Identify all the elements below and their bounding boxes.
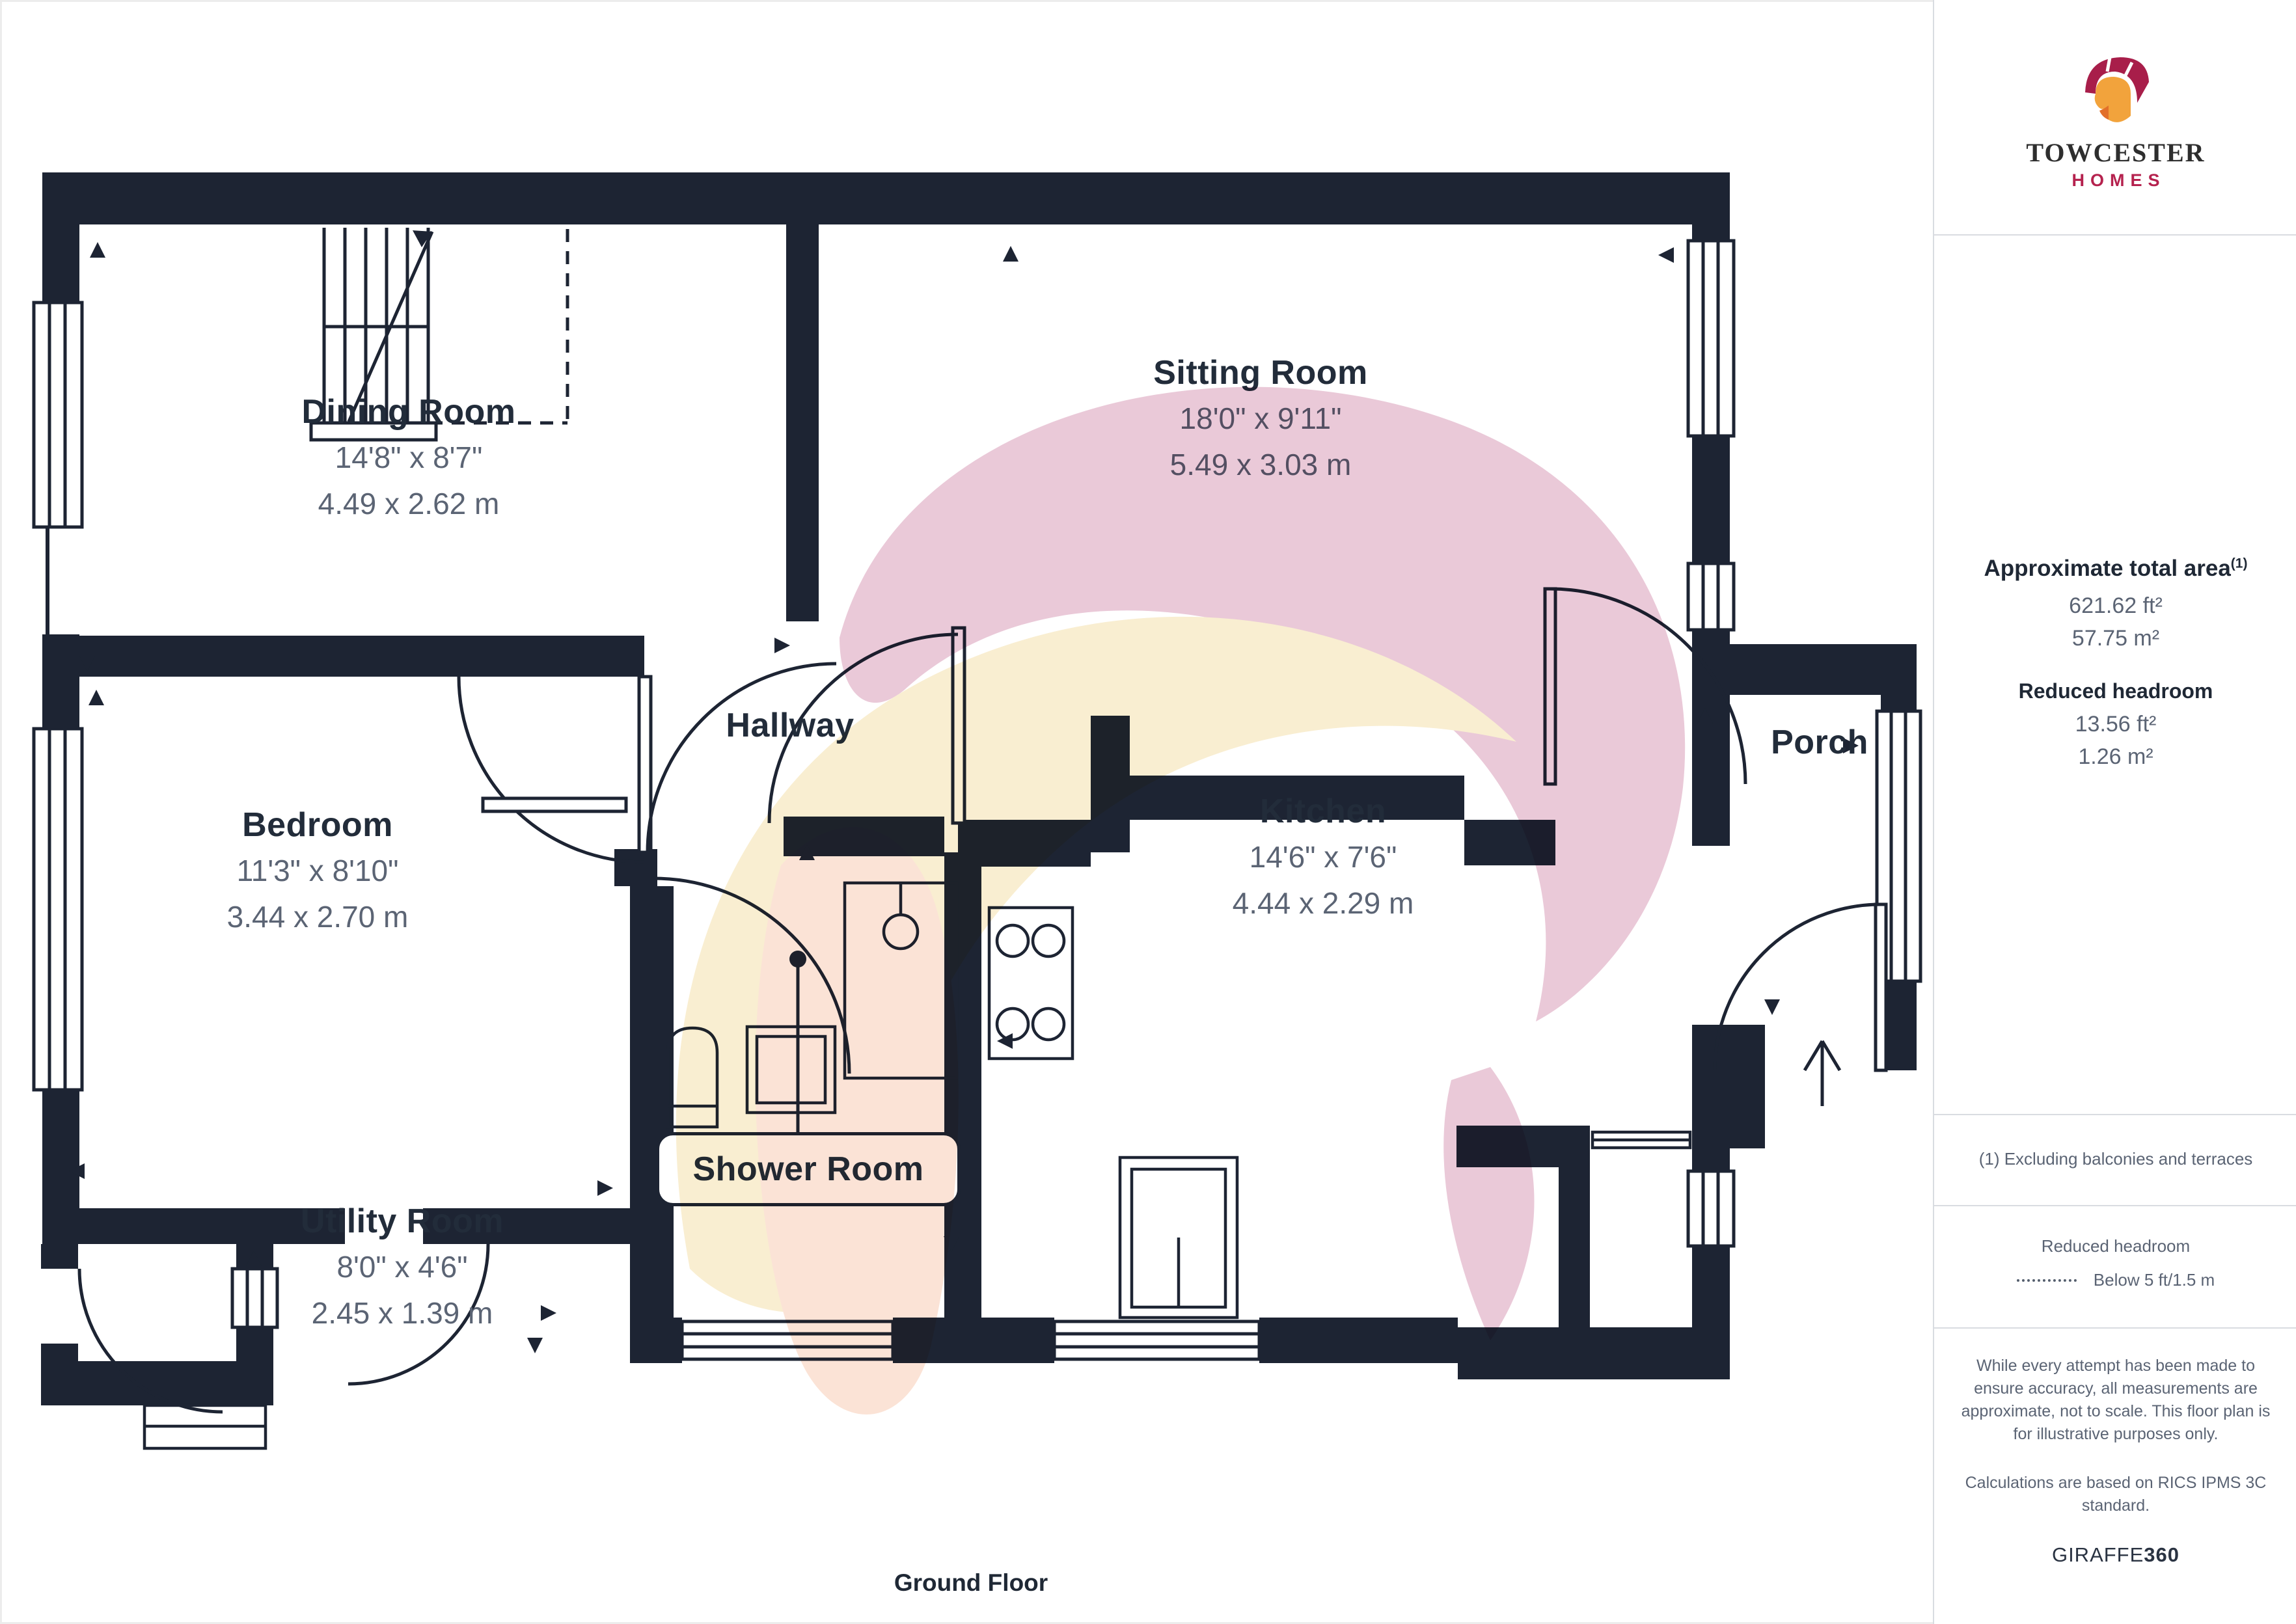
room-dim-imperial: 11'3" x 8'10" xyxy=(227,848,409,894)
floor-name: Ground Floor xyxy=(894,1569,1048,1597)
legend-row: Below 5 ft/1.5 m xyxy=(1934,1270,2296,1290)
brand-bold: 360 xyxy=(2144,1543,2180,1566)
room-label-utility: Utility Room 8'0" x 4'6" 2.45 x 1.39 m xyxy=(301,1198,504,1336)
reduced-headroom-heading: Reduced headroom xyxy=(1934,679,2296,703)
room-dim-imperial: 18'0" x 9'11" xyxy=(1153,396,1368,442)
room-dim-imperial: 14'6" x 7'6" xyxy=(1233,834,1414,880)
shower-label-leader xyxy=(789,951,806,1132)
room-label-bedroom: Bedroom 11'3" x 8'10" 3.44 x 2.70 m xyxy=(227,802,409,940)
sidebar-divider xyxy=(1934,1114,2296,1115)
room-name: Shower Room xyxy=(692,1152,923,1186)
total-area-ft: 621.62 ft² xyxy=(1934,593,2296,619)
info-sidebar: TOWCESTER HOMES Approximate total area(1… xyxy=(1933,0,2296,1624)
sidebar-divider xyxy=(1934,1205,2296,1206)
room-dim-metric: 3.44 x 2.70 m xyxy=(227,894,409,940)
room-dim-metric: 4.49 x 2.62 m xyxy=(301,481,515,527)
room-dim-metric: 4.44 x 2.29 m xyxy=(1233,880,1414,927)
dashed-line-sample xyxy=(2017,1279,2077,1282)
agency-logo: TOWCESTER HOMES xyxy=(1934,51,2296,191)
room-label-sitting: Sitting Room 18'0" x 9'11" 5.49 x 3.03 m xyxy=(1153,350,1368,488)
room-name: Kitchen xyxy=(1233,789,1414,834)
reduced-headroom-m: 1.26 m² xyxy=(1934,744,2296,770)
room-name: Hallway xyxy=(726,703,854,748)
disclaimer-text: While every attempt has been made to ens… xyxy=(1953,1355,2278,1446)
room-label-hallway: Hallway xyxy=(726,703,854,748)
legend-label: Below 5 ft/1.5 m xyxy=(2094,1270,2215,1290)
helmet-logo-icon xyxy=(2073,51,2158,130)
room-label-shower-callout: Shower Room xyxy=(656,1132,961,1206)
brand-normal: GIRAFFE xyxy=(2052,1543,2144,1566)
footnote: (1) Excluding balconies and terraces xyxy=(1934,1149,2296,1169)
room-dim-metric: 5.49 x 3.03 m xyxy=(1153,442,1368,488)
room-name: Porch xyxy=(1771,720,1868,765)
total-area-m: 57.75 m² xyxy=(1934,626,2296,651)
room-name: Sitting Room xyxy=(1153,350,1368,396)
total-area-heading-text: Approximate total area xyxy=(1984,556,2231,581)
room-name: Utility Room xyxy=(301,1198,504,1244)
room-name: Dining Room xyxy=(301,389,515,435)
room-dim-imperial: 14'8" x 8'7" xyxy=(301,435,515,481)
room-dim-imperial: 8'0" x 4'6" xyxy=(301,1244,504,1290)
giraffe360-brand: GIRAFFE360 xyxy=(1934,1543,2296,1567)
room-label-dining: Dining Room 14'8" x 8'7" 4.49 x 2.62 m xyxy=(301,389,515,527)
reduced-headroom-ft: 13.56 ft² xyxy=(1934,712,2296,737)
room-label-porch: Porch xyxy=(1771,720,1868,765)
total-area-heading-sup: (1) xyxy=(2231,556,2248,571)
page: Dining Room 14'8" x 8'7" 4.49 x 2.62 m S… xyxy=(0,0,2296,1624)
legend-title: Reduced headroom xyxy=(1934,1236,2296,1256)
standards-text: Calculations are based on RICS IPMS 3C s… xyxy=(1953,1472,2278,1517)
room-dim-metric: 2.45 x 1.39 m xyxy=(301,1290,504,1336)
room-name: Bedroom xyxy=(227,802,409,848)
agency-name: TOWCESTER xyxy=(1934,137,2296,168)
sidebar-divider xyxy=(1934,234,2296,236)
agency-name-sub: HOMES xyxy=(1934,170,2296,191)
entrance-arrow-icon xyxy=(1805,1041,1840,1106)
sidebar-divider xyxy=(1934,1327,2296,1329)
total-area-heading: Approximate total area(1) xyxy=(1934,556,2296,582)
room-label-kitchen: Kitchen 14'6" x 7'6" 4.44 x 2.29 m xyxy=(1233,789,1414,927)
